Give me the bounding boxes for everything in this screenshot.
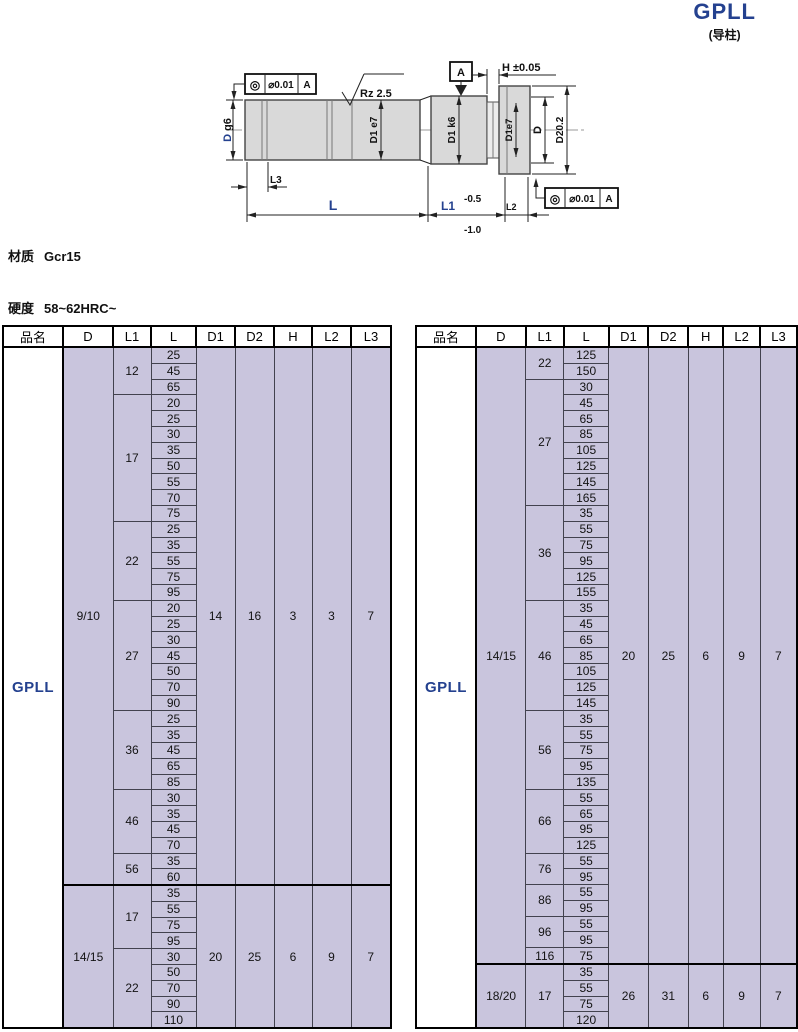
l1-cell: 56 xyxy=(526,711,564,790)
l-cell: 70 xyxy=(151,980,196,996)
d2-cell: 31 xyxy=(648,964,688,1028)
l1-cell: 17 xyxy=(113,395,151,521)
l-cell: 35 xyxy=(564,600,609,616)
svg-text:L1: L1 xyxy=(441,199,455,213)
l-cell: 30 xyxy=(151,949,196,965)
l3-cell: 7 xyxy=(351,885,391,1028)
l-cell: 60 xyxy=(151,869,196,885)
l-cell: 55 xyxy=(151,901,196,917)
l1-cell: 27 xyxy=(526,379,564,505)
l-cell: 55 xyxy=(564,980,609,996)
l-cell: 95 xyxy=(151,933,196,949)
d1-cell: 14 xyxy=(196,347,235,885)
column-header: 品名 xyxy=(3,326,63,347)
svg-text:A: A xyxy=(457,67,465,79)
svg-text:D: D xyxy=(532,126,544,134)
l1-cell: 22 xyxy=(526,347,564,379)
l-cell: 95 xyxy=(564,821,609,837)
l-cell: 45 xyxy=(564,616,609,632)
svg-text:L3: L3 xyxy=(270,175,282,186)
l-cell: 125 xyxy=(564,569,609,585)
l-cell: 55 xyxy=(564,853,609,869)
svg-text:A: A xyxy=(303,80,310,91)
l-cell: 25 xyxy=(151,411,196,427)
l-cell: 65 xyxy=(151,379,196,395)
l-cell: 35 xyxy=(151,727,196,743)
l-cell: 75 xyxy=(151,917,196,933)
l-cell: 95 xyxy=(151,584,196,600)
l-cell: 55 xyxy=(564,916,609,932)
product-cell: GPLL xyxy=(3,347,63,1028)
concentricity-icon: ◎ xyxy=(250,78,261,92)
h-cell: 6 xyxy=(688,964,723,1028)
l-cell: 90 xyxy=(151,996,196,1012)
svg-text:D1 k6: D1 k6 xyxy=(447,116,458,143)
h-cell: 3 xyxy=(274,347,312,885)
column-header: H xyxy=(274,326,312,347)
spec-table-left: 品名DL1LD1D2HL2L3GPLL9/1012251416337456517… xyxy=(2,325,392,1029)
l-cell: 135 xyxy=(564,774,609,790)
l-cell: 165 xyxy=(564,490,609,506)
column-header: L xyxy=(564,326,609,347)
l-cell: 125 xyxy=(564,679,609,695)
l2-cell: 3 xyxy=(312,347,351,885)
l-cell: 75 xyxy=(151,569,196,585)
l-cell: 50 xyxy=(151,458,196,474)
l-cell: 50 xyxy=(151,965,196,981)
svg-text:D1e7: D1e7 xyxy=(504,119,515,142)
l-cell: 75 xyxy=(151,505,196,521)
l-cell: 35 xyxy=(564,964,609,980)
l-cell: 35 xyxy=(151,537,196,553)
l1-cell: 17 xyxy=(526,964,564,1028)
l1-cell: 22 xyxy=(113,949,151,1028)
d-cell: 14/15 xyxy=(63,885,113,1028)
l-cell: 70 xyxy=(151,490,196,506)
l1-cell: 76 xyxy=(526,853,564,885)
l-cell: 155 xyxy=(564,584,609,600)
hardness-line: 硬度58~62HRC~ xyxy=(8,298,116,317)
d-cell: 9/10 xyxy=(63,347,113,885)
l-cell: 35 xyxy=(151,853,196,869)
svg-text:⌀0.01: ⌀0.01 xyxy=(268,80,294,91)
dim-l2: L2 xyxy=(505,177,549,222)
l-cell: 85 xyxy=(564,426,609,442)
l-cell: 30 xyxy=(151,632,196,648)
l1-cell: 36 xyxy=(526,505,564,600)
l-cell: 145 xyxy=(564,474,609,490)
l-cell: 75 xyxy=(564,996,609,1012)
l-cell: 120 xyxy=(564,1012,609,1028)
material-label: 材质 xyxy=(8,249,34,264)
l-cell: 75 xyxy=(564,948,609,964)
l-cell: 45 xyxy=(151,648,196,664)
l-cell: 35 xyxy=(151,442,196,458)
l1-cell: 46 xyxy=(526,600,564,711)
l-cell: 30 xyxy=(151,790,196,806)
l-cell: 95 xyxy=(564,758,609,774)
l-cell: 55 xyxy=(151,553,196,569)
l3-cell: 7 xyxy=(351,347,391,885)
l-cell: 90 xyxy=(151,695,196,711)
l1-cell: 116 xyxy=(526,948,564,964)
svg-text:Rz 2.5: Rz 2.5 xyxy=(360,88,392,100)
column-header: L2 xyxy=(312,326,351,347)
l-cell: 20 xyxy=(151,600,196,616)
svg-text:D1 e7: D1 e7 xyxy=(369,116,380,143)
l-cell: 20 xyxy=(151,395,196,411)
l3-cell: 7 xyxy=(760,347,797,964)
product-cell: GPLL xyxy=(416,347,476,1028)
technical-drawing: ◎ ⌀0.01 A Rz 2.5 A Dg6 D1 e7 D1 xyxy=(0,0,798,250)
l-cell: 55 xyxy=(564,885,609,901)
tolerance-frame-bottom: ◎ ⌀0.01 A xyxy=(534,178,619,208)
d2-cell: 16 xyxy=(235,347,274,885)
column-header: 品名 xyxy=(416,326,476,347)
l-cell: 55 xyxy=(564,790,609,806)
l-cell: 125 xyxy=(564,347,609,363)
l-cell: 30 xyxy=(564,379,609,395)
l-cell: 25 xyxy=(151,616,196,632)
hardness-value: 58~62HRC~ xyxy=(44,301,116,316)
l-cell: 35 xyxy=(564,505,609,521)
l-cell: 65 xyxy=(564,806,609,822)
l1-cell: 46 xyxy=(113,790,151,853)
l1-cell: 86 xyxy=(526,885,564,917)
l2-cell: 9 xyxy=(723,964,760,1028)
l1-cell: 22 xyxy=(113,521,151,600)
l-cell: 45 xyxy=(151,363,196,379)
l1-cell: 12 xyxy=(113,347,151,395)
datum-flag: A xyxy=(450,62,472,96)
l-cell: 75 xyxy=(564,537,609,553)
dim-l3: L3 xyxy=(231,162,287,222)
l-cell: 65 xyxy=(151,758,196,774)
l-cell: 30 xyxy=(151,426,196,442)
d2-cell: 25 xyxy=(648,347,688,964)
l-cell: 55 xyxy=(564,727,609,743)
l-cell: 25 xyxy=(151,347,196,363)
svg-text:-1.0: -1.0 xyxy=(464,225,482,236)
l-cell: 70 xyxy=(151,837,196,853)
l-cell: 25 xyxy=(151,711,196,727)
l1-cell: 56 xyxy=(113,853,151,885)
column-header: D2 xyxy=(235,326,274,347)
l-cell: 150 xyxy=(564,363,609,379)
dim-l1: L1 -0.5 -1.0 xyxy=(428,194,505,236)
l-cell: 55 xyxy=(564,521,609,537)
l-cell: 55 xyxy=(151,474,196,490)
l3-cell: 7 xyxy=(760,964,797,1028)
l-cell: 45 xyxy=(151,742,196,758)
l1-cell: 17 xyxy=(113,885,151,949)
l-cell: 95 xyxy=(564,553,609,569)
l-cell: 35 xyxy=(151,885,196,901)
svg-text:⌀0.01: ⌀0.01 xyxy=(569,194,595,205)
l-cell: 50 xyxy=(151,663,196,679)
column-header: D1 xyxy=(196,326,235,347)
material-line: 材质Gcr15 xyxy=(8,246,81,265)
l-cell: 45 xyxy=(564,395,609,411)
spec-table-right: 品名DL1LD1D2HL2L3GPLL14/152212520256971502… xyxy=(415,325,798,1029)
column-header: D xyxy=(476,326,526,347)
l-cell: 95 xyxy=(564,900,609,916)
l1-cell: 66 xyxy=(526,790,564,853)
l-cell: 35 xyxy=(151,806,196,822)
l-cell: 125 xyxy=(564,458,609,474)
l-cell: 70 xyxy=(151,679,196,695)
column-header: H xyxy=(688,326,723,347)
h-cell: 6 xyxy=(274,885,312,1028)
l-cell: 45 xyxy=(151,821,196,837)
column-header: D2 xyxy=(648,326,688,347)
l-cell: 65 xyxy=(564,411,609,427)
svg-text:D20.2: D20.2 xyxy=(555,116,566,143)
column-header: D xyxy=(63,326,113,347)
material-value: Gcr15 xyxy=(44,249,81,264)
column-header: L1 xyxy=(113,326,151,347)
spec-table: 品名DL1LD1D2HL2L3GPLL14/152212520256971502… xyxy=(415,325,798,1029)
d-cell: 18/20 xyxy=(476,964,526,1028)
l-cell: 85 xyxy=(151,774,196,790)
table-row: GPLL9/1012251416337 xyxy=(3,347,391,363)
svg-text:L: L xyxy=(329,197,338,213)
svg-text:-0.5: -0.5 xyxy=(464,194,482,205)
l1-cell: 36 xyxy=(113,711,151,790)
l-cell: 110 xyxy=(151,1012,196,1028)
l-cell: 95 xyxy=(564,932,609,948)
column-header: D1 xyxy=(609,326,649,347)
d1-cell: 26 xyxy=(609,964,649,1028)
column-header: L2 xyxy=(723,326,760,347)
table-row: GPLL14/15221252025697 xyxy=(416,347,797,363)
column-header: L3 xyxy=(760,326,797,347)
column-header: L xyxy=(151,326,196,347)
column-header: L1 xyxy=(526,326,564,347)
h-cell: 6 xyxy=(688,347,723,964)
l2-cell: 9 xyxy=(312,885,351,1028)
l2-cell: 9 xyxy=(723,347,760,964)
d1-cell: 20 xyxy=(196,885,235,1028)
hardness-label: 硬度 xyxy=(8,301,34,316)
svg-text:A: A xyxy=(605,194,612,205)
svg-text:H ±0.05: H ±0.05 xyxy=(502,62,540,74)
d-cell: 14/15 xyxy=(476,347,526,964)
l-cell: 35 xyxy=(564,711,609,727)
l-cell: 95 xyxy=(564,869,609,885)
l-cell: 25 xyxy=(151,521,196,537)
svg-text:L2: L2 xyxy=(506,202,517,212)
dim-label-d: Dg6 xyxy=(222,118,234,142)
spec-table: 品名DL1LD1D2HL2L3GPLL9/1012251416337456517… xyxy=(2,325,392,1029)
l1-cell: 27 xyxy=(113,600,151,711)
l-cell: 145 xyxy=(564,695,609,711)
l-cell: 75 xyxy=(564,742,609,758)
l-cell: 105 xyxy=(564,663,609,679)
l-cell: 65 xyxy=(564,632,609,648)
l-cell: 125 xyxy=(564,837,609,853)
concentricity-icon: ◎ xyxy=(550,192,561,206)
l-cell: 85 xyxy=(564,648,609,664)
l1-cell: 96 xyxy=(526,916,564,948)
d2-cell: 25 xyxy=(235,885,274,1028)
d1-cell: 20 xyxy=(609,347,649,964)
tolerance-frame-top: ◎ ⌀0.01 A xyxy=(232,74,317,100)
l-cell: 105 xyxy=(564,442,609,458)
column-header: L3 xyxy=(351,326,391,347)
